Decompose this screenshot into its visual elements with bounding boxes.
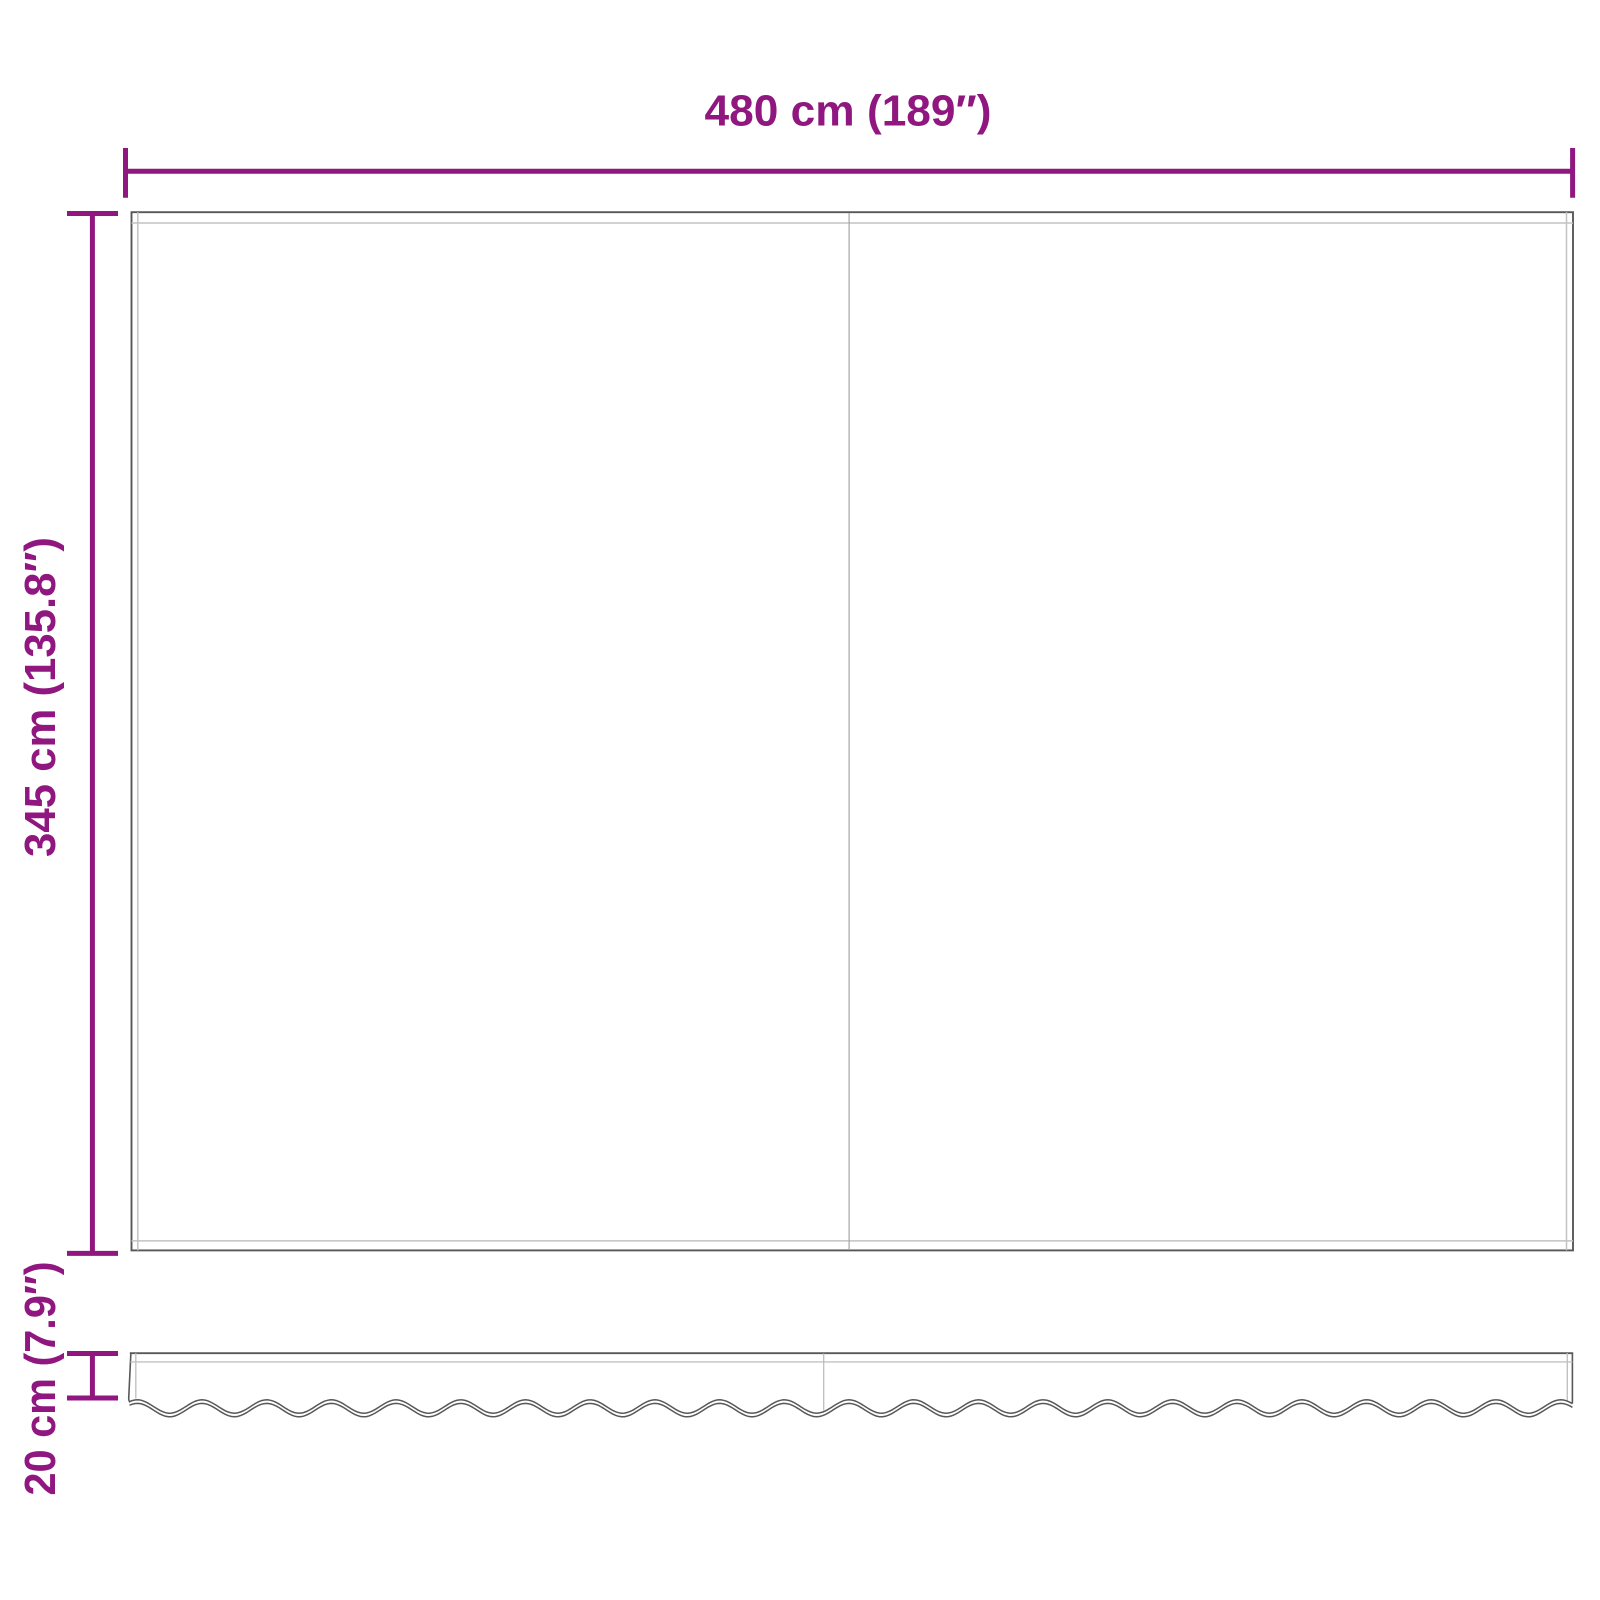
svg-text:20 cm (7.9″): 20 cm (7.9″) — [16, 1262, 65, 1496]
svg-text:345 cm (135.8″): 345 cm (135.8″) — [16, 537, 65, 857]
svg-text:480 cm (189″): 480 cm (189″) — [705, 86, 992, 135]
